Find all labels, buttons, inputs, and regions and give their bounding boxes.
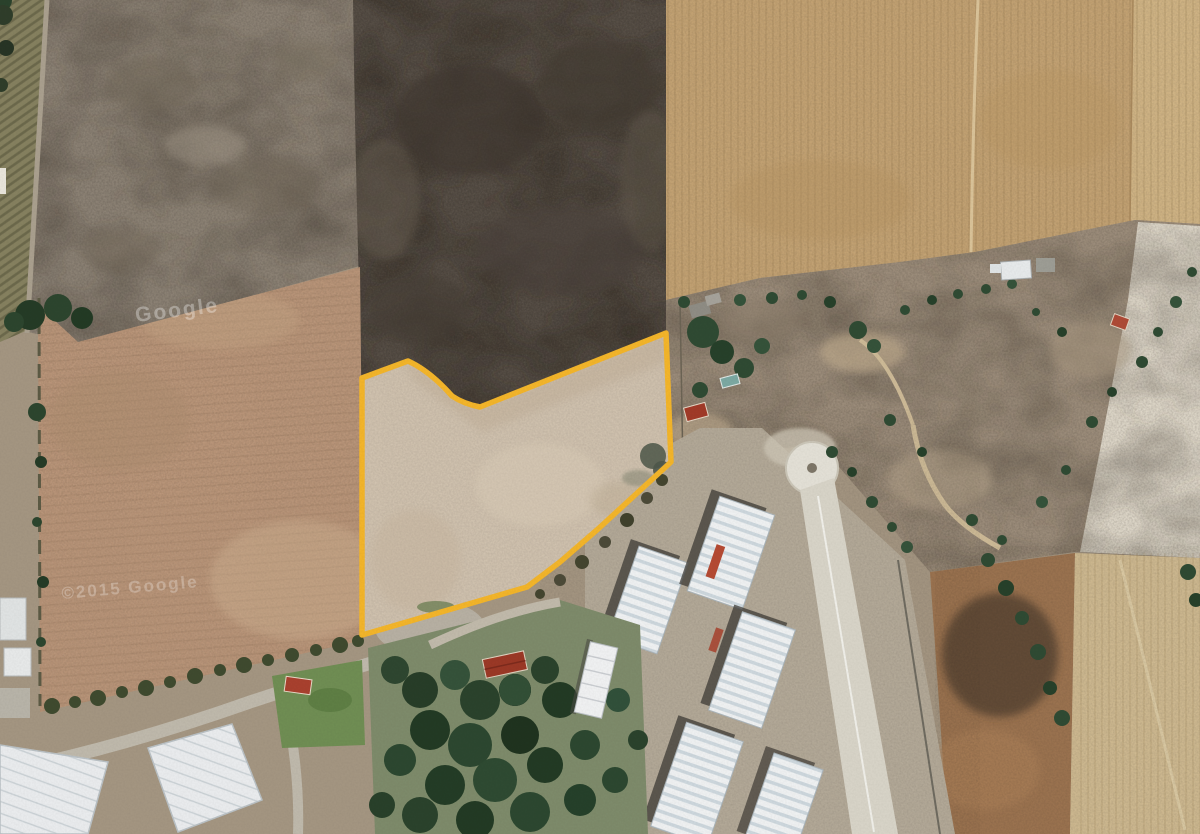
global-grain — [0, 0, 1200, 834]
satellite-map[interactable]: Google ©2015 Google — [0, 0, 1200, 834]
satellite-map-viewport[interactable]: Google ©2015 Google — [0, 0, 1200, 834]
